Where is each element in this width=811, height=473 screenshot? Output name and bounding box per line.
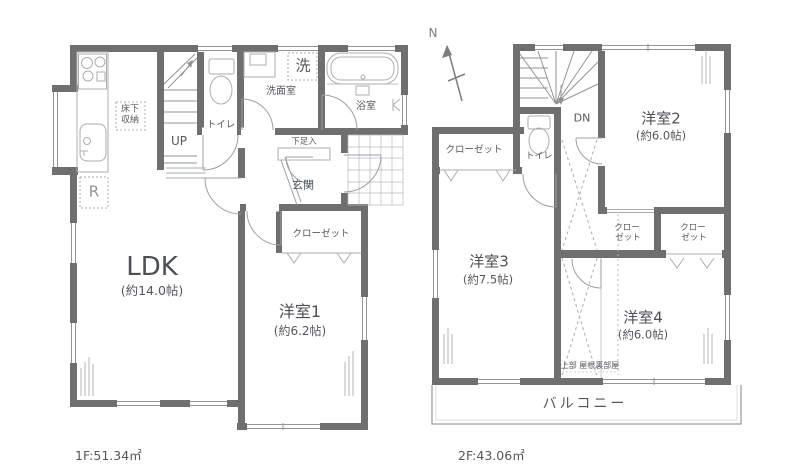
label-closet-b-line1: クロー <box>680 224 706 233</box>
label-laundry: 洗 <box>295 59 310 74</box>
floor1-plan <box>52 45 408 430</box>
room-size-yoshitsu4: (約6.0帖) <box>618 329 668 341</box>
label-genkan: 玄関 <box>292 180 314 191</box>
label-underfloor-storage-1: 床下 <box>121 106 139 115</box>
floor-plan-canvas: LDK (約14.0帖) 洋室1 (約6.2帖) クローゼット 玄関 下足入 浴… <box>0 0 811 473</box>
room-label-yoshitsu3: 洋室3 <box>469 255 509 270</box>
label-toilet-1f: トイレ <box>207 120 236 130</box>
toilet-icon-2f <box>528 116 550 154</box>
room-label-yoshitsu4: 洋室4 <box>623 311 663 326</box>
porch-tile-grid <box>348 135 403 205</box>
label-closet-b-line2: ゼット <box>681 234 707 243</box>
label-bathroom: 浴室 <box>356 102 376 112</box>
north-arrow-icon <box>442 45 465 101</box>
vanity-icon <box>244 52 275 77</box>
label-closet-2f-left: クローゼット <box>445 145 502 155</box>
room-label-ldk: LDK <box>126 254 178 280</box>
room-size-yoshitsu1: (約6.2帖) <box>274 325 326 337</box>
closet-1f-doors <box>282 253 361 263</box>
label-refrigerator: R <box>89 185 99 200</box>
floor1-hatch-marks <box>81 351 353 396</box>
kitchen-counter <box>77 52 108 172</box>
room-size-ldk: (約14.0帖) <box>121 285 184 298</box>
attic-ladder-marks <box>562 140 618 378</box>
label-stairs-dn: DN <box>574 113 591 124</box>
floor1-door-gaps <box>202 128 349 212</box>
room-size-yoshitsu2: (約6.0帖) <box>636 130 686 142</box>
staircase-2f <box>520 51 598 105</box>
north-label: N <box>429 27 438 39</box>
label-toilet-2f: トイレ <box>525 153 552 162</box>
label-balcony: バルコニー <box>543 397 628 411</box>
label-closet-a-line1: クロー <box>614 224 640 233</box>
label-washroom: 洗面室 <box>266 87 296 97</box>
label-stairs-up: UP <box>171 135 187 147</box>
floor1-area-text: 1F:51.34㎡ <box>75 445 142 464</box>
label-closet-1f: クローゼット <box>292 229 349 239</box>
room-label-yoshitsu2: 洋室2 <box>641 112 681 127</box>
label-shoe-cabinet: 下足入 <box>291 138 317 147</box>
floor1-windows <box>54 45 409 430</box>
label-underfloor-storage-2: 収納 <box>121 117 139 126</box>
room-label-yoshitsu1: 洋室1 <box>279 304 321 320</box>
label-attic-above: 上部 屋根裏部屋 <box>561 362 620 370</box>
floor2-area-text: 2F:43.06㎡ <box>458 445 525 464</box>
room-size-yoshitsu3: (約7.5帖) <box>463 274 513 286</box>
floor1-walls <box>52 45 408 430</box>
floor2-windows <box>432 44 731 385</box>
floor2-walls <box>432 44 731 385</box>
bath-window-mark <box>393 99 400 111</box>
toilet-icon-1f <box>209 59 234 104</box>
label-closet-a-line2: ゼット <box>615 234 641 243</box>
